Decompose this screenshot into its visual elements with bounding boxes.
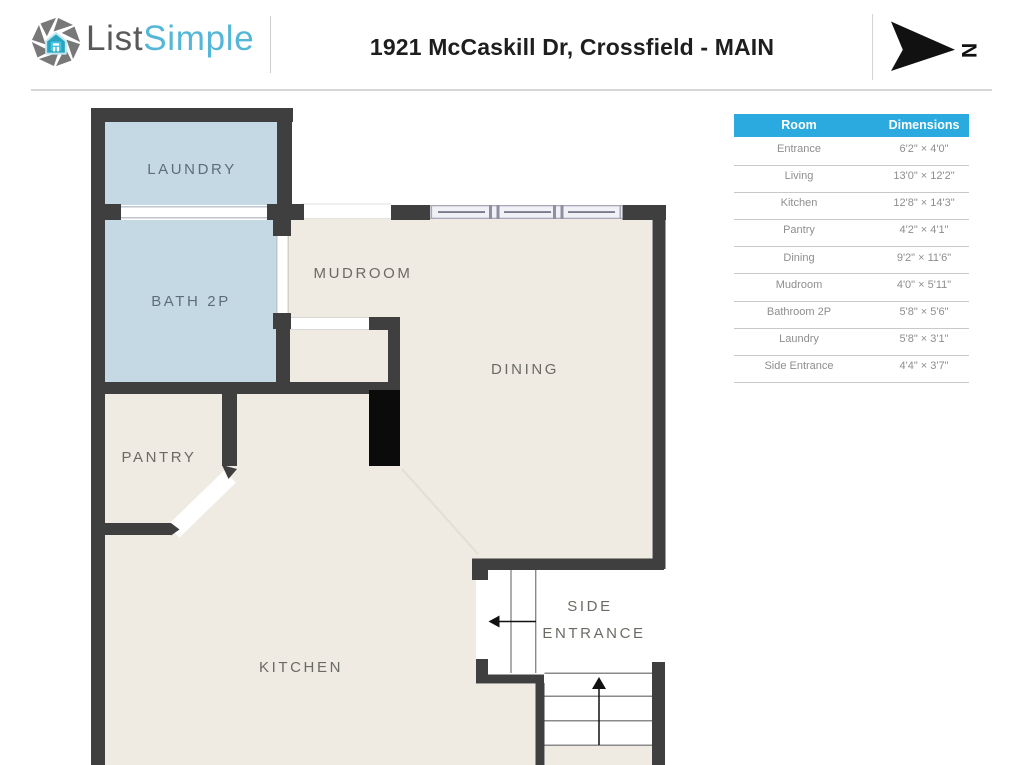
svg-text:KITCHEN: KITCHEN — [259, 659, 343, 676]
svg-text:BATH 2P: BATH 2P — [151, 293, 231, 310]
svg-text:ENTRANCE: ENTRANCE — [542, 625, 645, 642]
svg-text:SIDE: SIDE — [567, 598, 612, 615]
svg-text:DINING: DINING — [491, 361, 559, 378]
svg-text:PANTRY: PANTRY — [121, 449, 196, 466]
svg-text:MUDROOM: MUDROOM — [313, 265, 412, 282]
svg-text:LAUNDRY: LAUNDRY — [147, 161, 237, 178]
